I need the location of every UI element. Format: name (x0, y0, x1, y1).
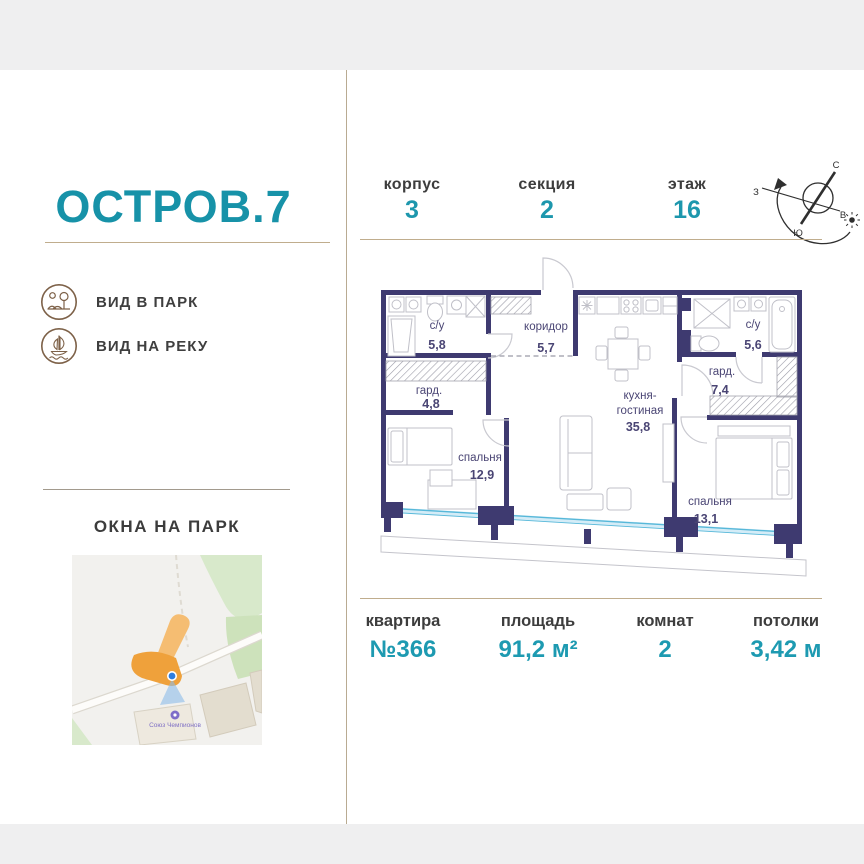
sektsiya-label: секция (502, 176, 592, 194)
brand-logo: ОСТРОВ.7 (0, 181, 347, 233)
wardrobe-shelving (777, 357, 797, 397)
corridor-closet (491, 297, 531, 314)
flat-card: ОСТРОВ.7 ВИД В ПАРК ВИД НА РЕКУ ОКНА НА … (0, 0, 864, 864)
river-view-icon (40, 327, 78, 365)
room-area-corridor: 5,7 (537, 341, 554, 355)
bedroom2-furniture (716, 426, 792, 499)
map-poi-label: Союз Чемпионов (149, 722, 201, 729)
room-area-ward1: 4,8 (422, 397, 439, 411)
stat-value: №366 (338, 636, 468, 664)
room-area-bath2: 5,6 (744, 338, 761, 352)
toilet-icon (699, 336, 719, 351)
cabinet-icon (597, 297, 619, 314)
stat-value: 91,2 м² (473, 636, 603, 664)
bathtub-icon (769, 297, 795, 352)
room-area-kitchen: 35,8 (626, 420, 650, 434)
header-block-etazh: этаж 16 (642, 176, 732, 225)
dining-table-icon (608, 339, 638, 369)
room-label-bed1: спальня (458, 452, 502, 464)
top-gray-band (0, 0, 864, 70)
stat-value: 3,42 м (721, 636, 851, 664)
stat-label: потолки (721, 612, 851, 631)
room-label-bath1: с/у (430, 320, 445, 332)
compass-north: С (833, 160, 840, 171)
feature-park-view: ВИД В ПАРК (40, 283, 198, 321)
room-label-bath2: с/у (746, 319, 761, 331)
room-label-kitchen-2: гостиная (617, 405, 664, 417)
toilet-icon (428, 303, 443, 321)
bottom-gray-band (0, 824, 864, 864)
compass-icon: С Ю З В (742, 154, 864, 246)
stove-icon (621, 297, 641, 314)
stat-flat-number: квартира №366 (338, 612, 468, 664)
sun-icon (844, 212, 860, 228)
desk-shelf-icon (430, 470, 452, 486)
korpus-value: 3 (367, 196, 457, 225)
compass-west: З (753, 187, 759, 198)
header-block-korpus: корпус 3 (367, 176, 457, 225)
room-area-bed1: 12,9 (470, 468, 494, 482)
room-label-bed2: спальня (688, 496, 732, 508)
header-separator-line (360, 239, 822, 240)
armchair-icon (607, 488, 631, 510)
header-block-sektsiya: секция 2 (502, 176, 592, 225)
room-area-bed2: 13,1 (694, 512, 718, 526)
map-poi-icon-dot (173, 713, 176, 716)
stat-area: площадь 91,2 м² (473, 612, 603, 664)
etazh-value: 16 (642, 196, 732, 225)
bathroom2-fixtures (691, 297, 795, 352)
etazh-label: этаж (642, 176, 732, 194)
feature-label: ВИД НА РЕКУ (96, 338, 208, 355)
feature-river-view: ВИД НА РЕКУ (40, 327, 208, 365)
double-bed-icon (716, 438, 792, 499)
stat-label: комнат (600, 612, 730, 631)
windows-section-title: ОКНА НА ПАРК (0, 517, 334, 537)
bath1-door (488, 334, 512, 358)
room-label-corridor: коридор (524, 321, 568, 333)
windows-section-line (43, 489, 290, 490)
entrance-door (543, 258, 573, 290)
stat-label: площадь (473, 612, 603, 631)
bath2-door (736, 357, 762, 383)
stat-ceiling: потолки 3,42 м (721, 612, 851, 664)
wardrobe-shelving (710, 396, 797, 415)
logo-underline (45, 242, 330, 243)
compass-east: В (840, 210, 846, 221)
location-map: Союз Чемпионов (72, 555, 262, 745)
stats-separator-line (360, 598, 822, 599)
room-area-ward2: 7,4 (711, 383, 728, 397)
floor-plan: с/у 5,8 коридор 5,7 гард. 4,8 спальня 12… (370, 248, 830, 592)
tv-unit-icon (663, 424, 674, 482)
kitchen-fixtures (579, 297, 677, 314)
bedroom1-furniture (388, 428, 476, 509)
balcony-glazing (381, 507, 806, 576)
balcony-outline (381, 536, 806, 576)
room-area-bath1: 5,8 (428, 338, 445, 352)
bed-icon (388, 428, 452, 465)
coffee-table-icon (567, 494, 603, 510)
sektsiya-value: 2 (502, 196, 592, 225)
headboard-console-icon (718, 426, 790, 436)
room-label-ward2: гард. (709, 366, 735, 378)
stat-rooms: комнат 2 (600, 612, 730, 664)
park-view-icon (40, 283, 78, 321)
room-label-kitchen-1: кухня- (623, 390, 656, 402)
stat-label: квартира (338, 612, 468, 631)
bedroom2-door (681, 417, 707, 443)
korpus-label: корпус (367, 176, 457, 194)
feature-label: ВИД В ПАРК (96, 294, 198, 311)
stat-value: 2 (600, 636, 730, 664)
room-label-ward1: гард. (416, 385, 442, 397)
map-location-marker (168, 672, 176, 680)
wardrobe-shelving (386, 361, 486, 381)
